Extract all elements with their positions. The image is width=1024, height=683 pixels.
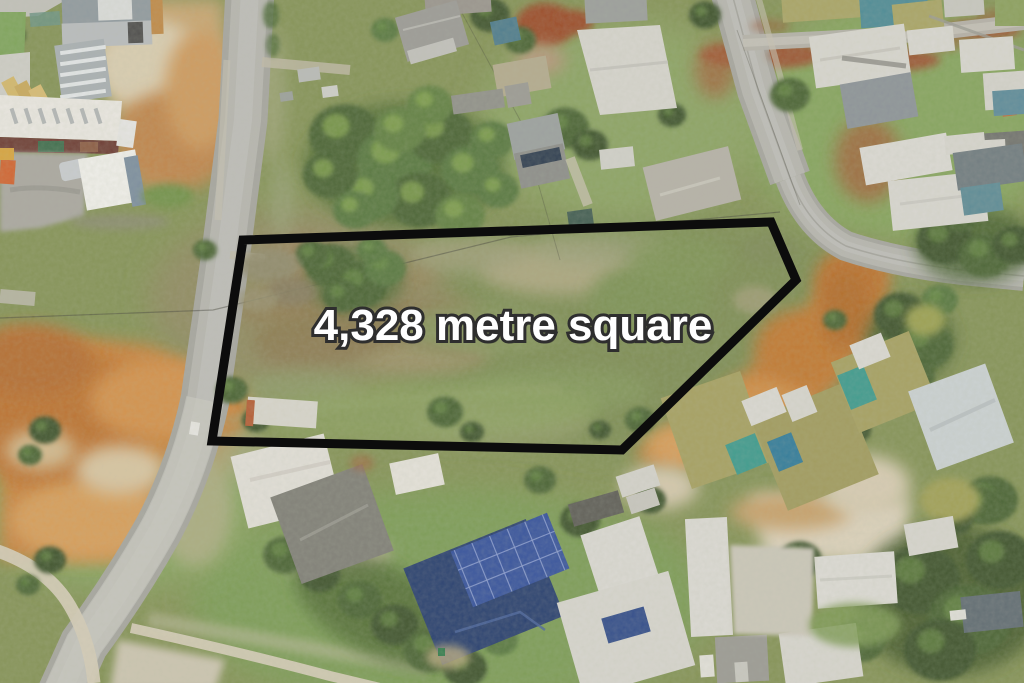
svg-text:4,328 metre square: 4,328 metre square [314,301,713,350]
